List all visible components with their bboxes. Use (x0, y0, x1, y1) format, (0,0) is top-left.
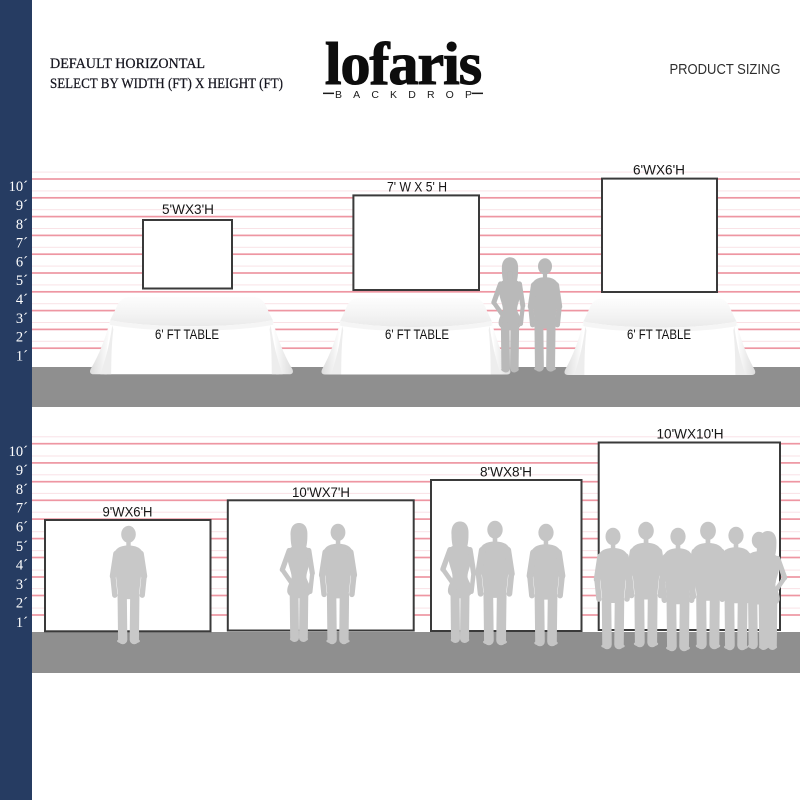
svg-text:9´: 9´ (16, 463, 28, 479)
svg-text:DEFAULT HORIZONTAL: DEFAULT HORIZONTAL (50, 56, 205, 72)
svg-text:6´: 6´ (16, 254, 28, 270)
svg-text:4´: 4´ (16, 292, 28, 308)
svg-text:1´: 1´ (16, 348, 28, 364)
svg-text:7´: 7´ (16, 501, 28, 517)
svg-text:5'WX3'H: 5'WX3'H (162, 202, 214, 217)
svg-text:10´: 10´ (9, 444, 28, 460)
svg-text:PRODUCT SIZING: PRODUCT SIZING (670, 61, 781, 78)
svg-text:10'WX7'H: 10'WX7'H (292, 485, 350, 500)
svg-text:7´: 7´ (16, 236, 28, 252)
svg-text:6´: 6´ (16, 519, 28, 535)
svg-text:SELECT BY WIDTH (FT) X HEIGHT: SELECT BY WIDTH (FT) X HEIGHT (FT) (50, 76, 283, 92)
svg-text:3´: 3´ (16, 311, 28, 327)
svg-text:8´: 8´ (16, 482, 28, 498)
svg-text:9'WX6'H: 9'WX6'H (103, 505, 153, 520)
svg-text:7' W X 5' H: 7' W X 5' H (387, 180, 447, 195)
svg-text:lofaris: lofaris (325, 31, 481, 97)
svg-text:10'WX10'H: 10'WX10'H (657, 427, 724, 442)
svg-text:10´: 10´ (9, 179, 28, 195)
svg-text:6' FT TABLE: 6' FT TABLE (385, 327, 449, 342)
svg-text:2´: 2´ (16, 596, 28, 612)
svg-text:6' FT TABLE: 6' FT TABLE (627, 327, 691, 342)
svg-text:8'WX8'H: 8'WX8'H (480, 465, 532, 480)
svg-text:8´: 8´ (16, 217, 28, 233)
svg-text:5´: 5´ (16, 273, 28, 289)
svg-text:1´: 1´ (16, 615, 28, 631)
svg-text:6' FT TABLE: 6' FT TABLE (155, 327, 219, 342)
svg-text:3´: 3´ (16, 577, 28, 593)
svg-text:2´: 2´ (16, 330, 28, 346)
svg-text:9´: 9´ (16, 198, 28, 214)
svg-text:6'WX6'H: 6'WX6'H (633, 163, 685, 178)
svg-text:5´: 5´ (16, 539, 28, 555)
svg-text:4´: 4´ (16, 558, 28, 574)
